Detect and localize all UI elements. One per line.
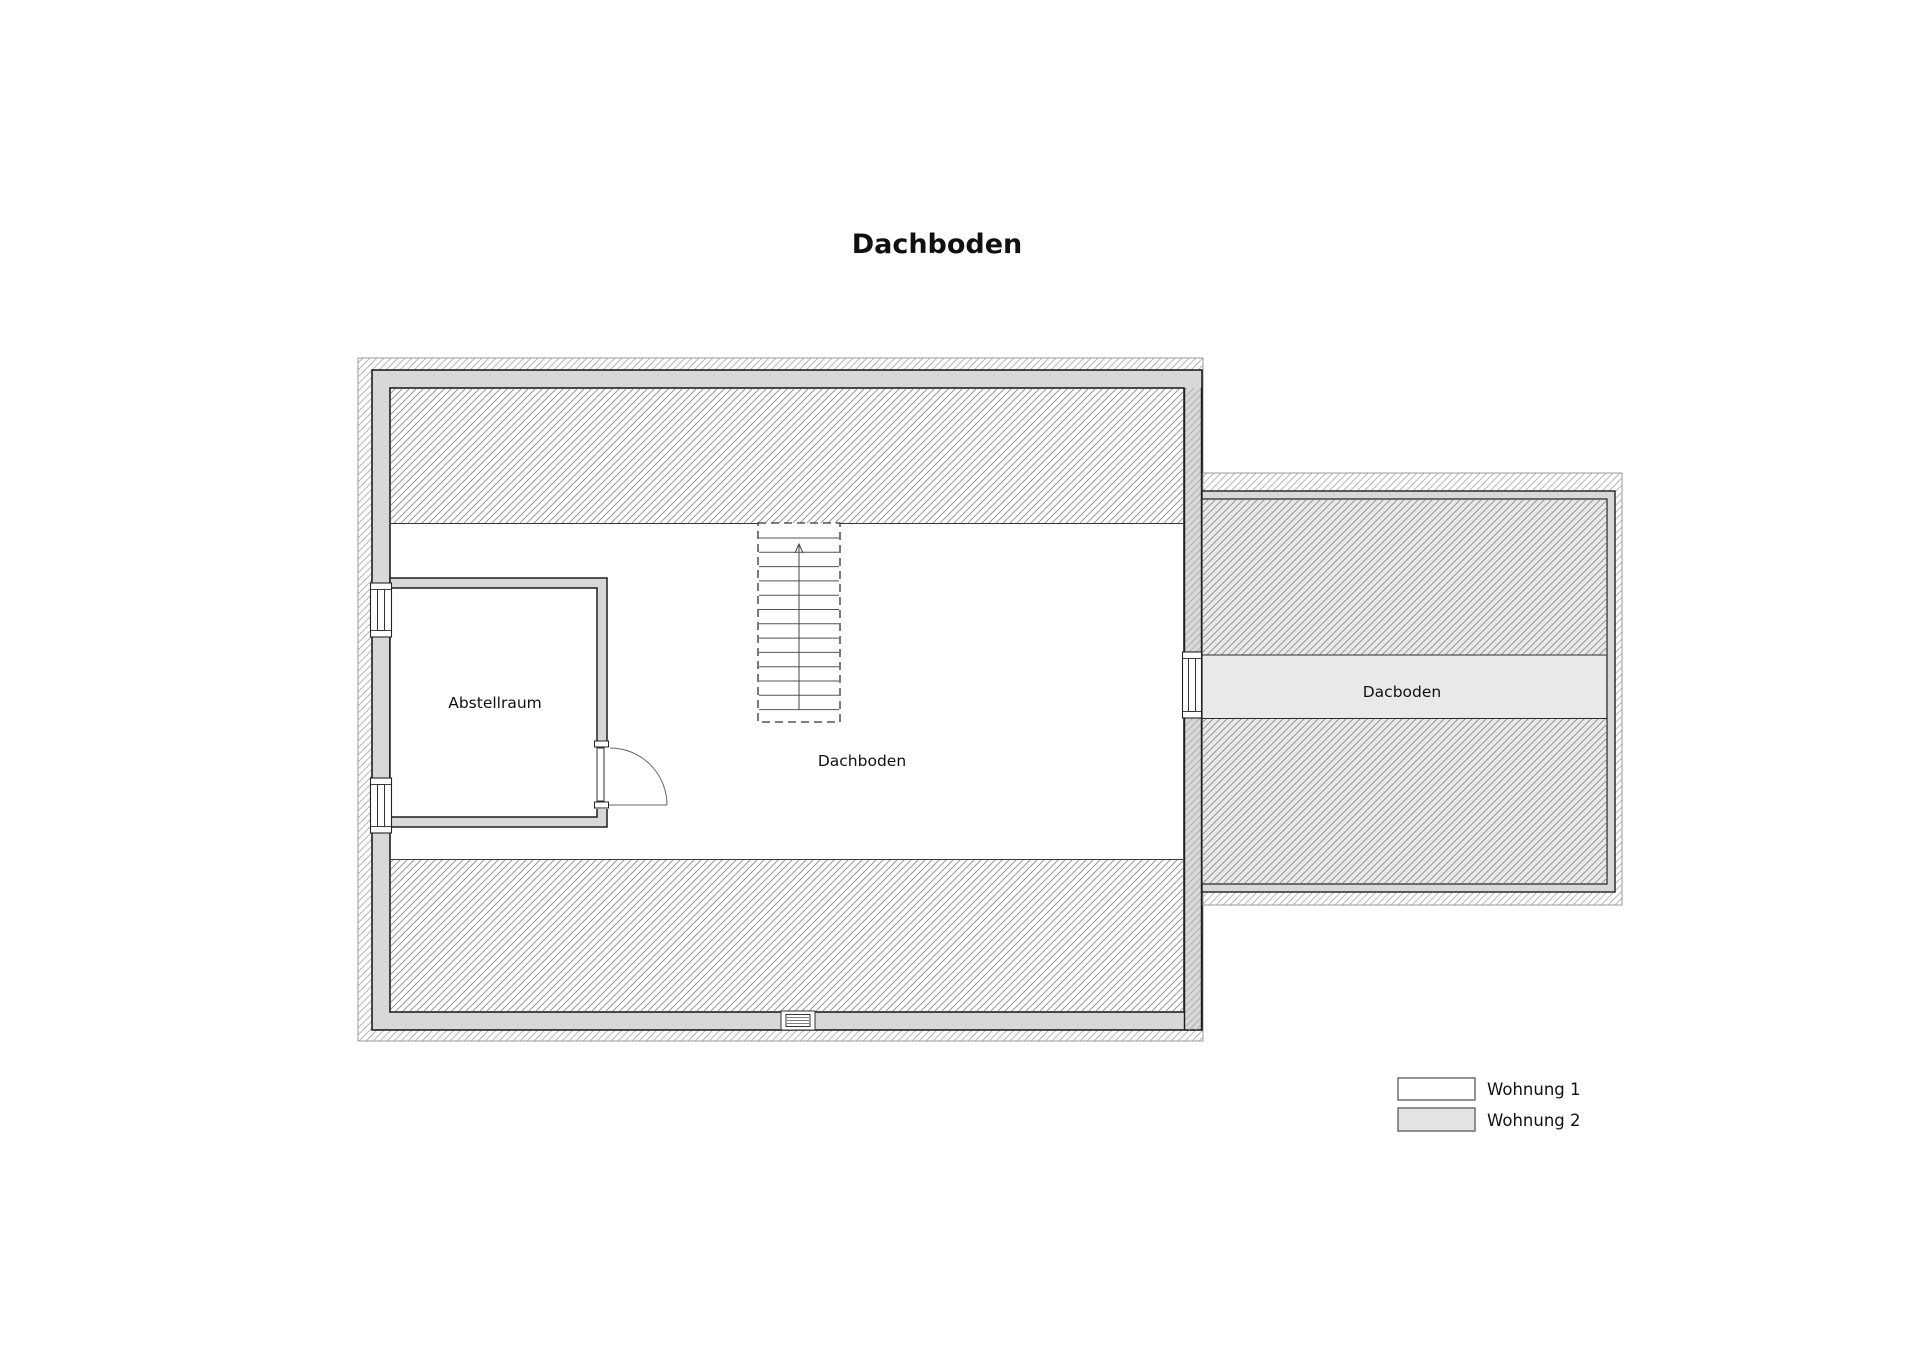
floor-plan: Dachboden: [0, 0, 1920, 1357]
legend-label-wohnung1: Wohnung 1: [1487, 1080, 1581, 1099]
page-title: Dachboden: [852, 229, 1023, 260]
window-icon-left-2: [371, 778, 392, 833]
room-label-dachboden: Dachboden: [818, 752, 906, 770]
vent-icon-bottom-wall: [781, 1011, 815, 1030]
door-frame-bottom: [595, 802, 609, 808]
floor-plan-page: Dachboden: [0, 0, 1920, 1357]
legend-swatch-wohnung1: [1398, 1078, 1475, 1100]
roof-slope-hatch-bottom: [391, 860, 1183, 1011]
legend: Wohnung 1 Wohnung 2: [1398, 1078, 1581, 1131]
room-label-abstellraum: Abstellraum: [448, 694, 542, 712]
window-icon-party-wall: [1183, 652, 1202, 718]
extension-roof-slope-hatch-bottom: [1203, 718, 1607, 883]
extension-roof-slope-hatch-top: [1203, 500, 1607, 655]
roof-slope-hatch-top: [391, 389, 1183, 523]
staircase: [758, 523, 840, 722]
door-frame-top: [595, 741, 609, 747]
window-icon-left-1: [371, 583, 392, 637]
door-leaf: [597, 748, 604, 801]
legend-swatch-wohnung2: [1398, 1108, 1475, 1131]
legend-label-wohnung2: Wohnung 2: [1487, 1111, 1581, 1130]
room-label-dacboden: Dacboden: [1363, 683, 1441, 701]
